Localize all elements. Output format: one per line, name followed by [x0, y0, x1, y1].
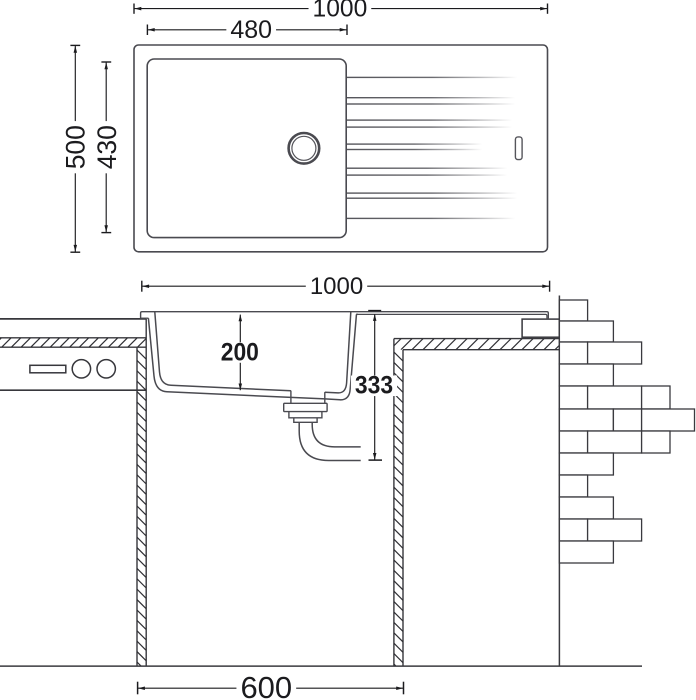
- svg-text:480: 480: [230, 16, 272, 44]
- svg-text:200: 200: [221, 338, 259, 366]
- svg-text:430: 430: [92, 125, 122, 169]
- svg-text:1000: 1000: [313, 0, 368, 22]
- svg-text:500: 500: [60, 125, 90, 169]
- svg-text:333: 333: [355, 372, 393, 400]
- svg-text:600: 600: [240, 670, 292, 700]
- svg-text:1000: 1000: [310, 273, 363, 300]
